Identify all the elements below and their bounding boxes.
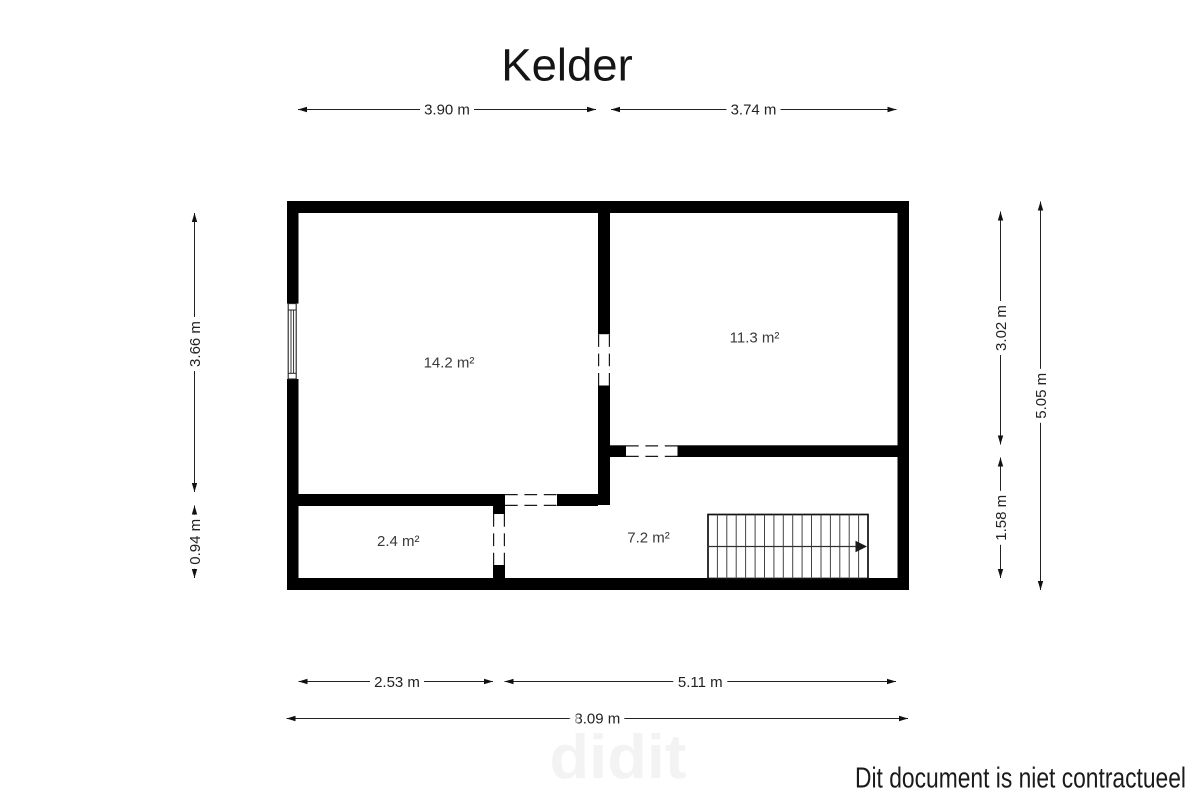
svg-text:didit: didit (550, 723, 687, 792)
svg-text:2.53 m: 2.53 m (374, 674, 420, 691)
svg-text:3.02 m: 3.02 m (993, 305, 1010, 351)
svg-text:2.4 m²: 2.4 m² (377, 533, 420, 550)
svg-text:11.3 m²: 11.3 m² (730, 329, 780, 346)
svg-text:3.90 m: 3.90 m (424, 102, 470, 119)
svg-text:Kelder: Kelder (501, 40, 633, 91)
svg-text:5.11 m: 5.11 m (678, 674, 723, 691)
svg-text:5.05 m: 5.05 m (1033, 373, 1050, 419)
svg-text:8.09 m: 8.09 m (574, 710, 620, 727)
svg-text:3.66 m: 3.66 m (187, 321, 204, 367)
svg-text:3.74 m: 3.74 m (731, 102, 777, 119)
svg-text:7.2 m²: 7.2 m² (627, 529, 670, 546)
svg-text:Dit document is niet contractu: Dit document is niet contractueel (855, 763, 1186, 795)
svg-text:1.58 m: 1.58 m (993, 495, 1010, 541)
svg-text:0.94 m: 0.94 m (187, 519, 204, 565)
svg-text:14.2 m²: 14.2 m² (424, 354, 475, 371)
